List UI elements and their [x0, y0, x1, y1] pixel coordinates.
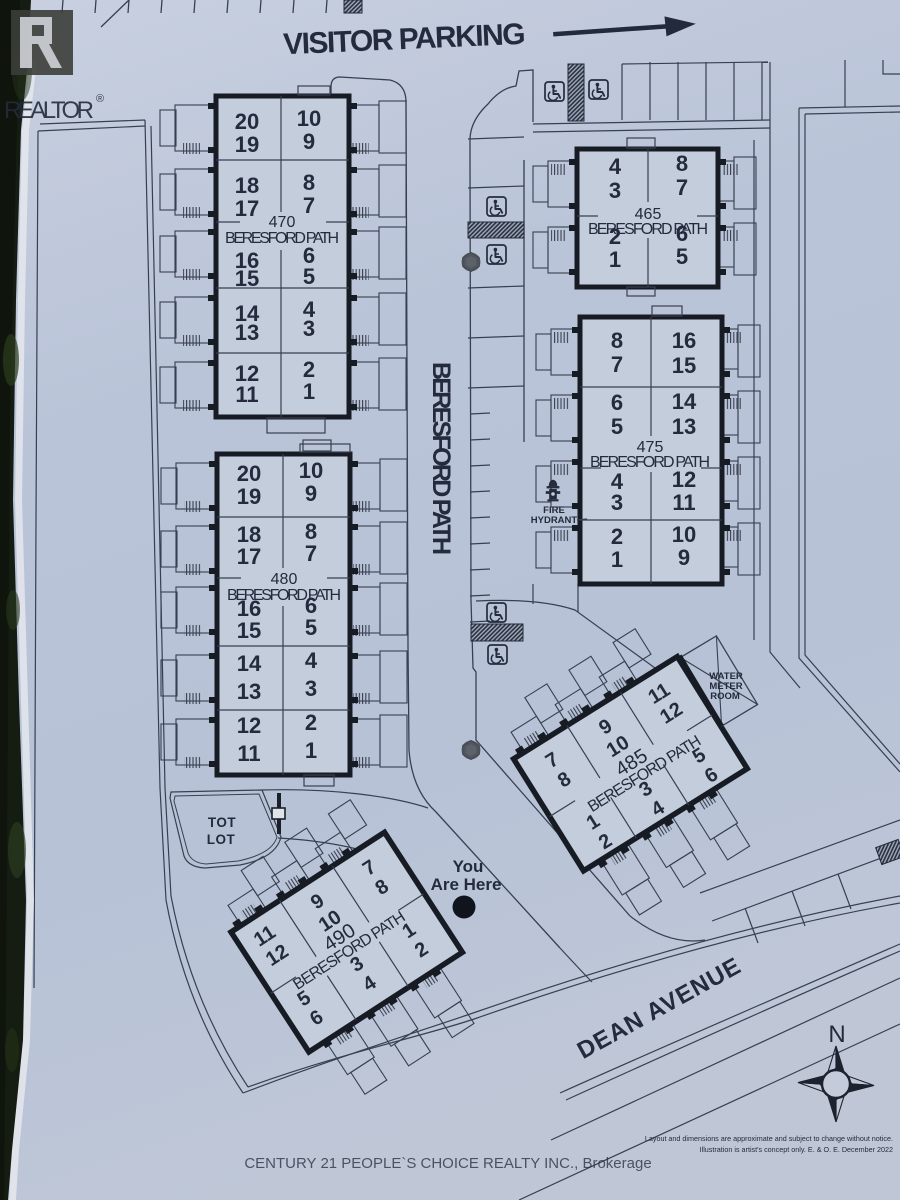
svg-text:2: 2 — [611, 524, 623, 549]
svg-text:BERESFORD PATH: BERESFORD PATH — [590, 454, 710, 471]
svg-text:BERESFORD PATH: BERESFORD PATH — [225, 230, 339, 247]
svg-text:13: 13 — [672, 414, 696, 439]
svg-text:Layout and dimensions are appr: Layout and dimensions are approximate an… — [645, 1134, 893, 1143]
svg-text:8: 8 — [303, 170, 315, 195]
svg-text:19: 19 — [237, 484, 261, 509]
svg-text:13: 13 — [235, 320, 259, 345]
svg-text:BERESFORD PATH: BERESFORD PATH — [227, 587, 341, 604]
svg-text:5: 5 — [611, 414, 623, 439]
svg-text:19: 19 — [235, 132, 259, 157]
svg-text:11: 11 — [672, 490, 695, 515]
svg-text:11: 11 — [235, 382, 258, 407]
svg-text:17: 17 — [235, 196, 259, 221]
svg-text:8: 8 — [676, 151, 688, 176]
svg-text:3: 3 — [305, 676, 317, 701]
svg-text:17: 17 — [237, 544, 261, 569]
svg-text:9: 9 — [305, 481, 317, 506]
svg-text:9: 9 — [678, 545, 690, 570]
svg-text:4: 4 — [609, 154, 622, 179]
svg-text:20: 20 — [237, 461, 261, 486]
svg-text:N: N — [828, 1021, 845, 1048]
svg-text:14: 14 — [672, 389, 697, 414]
svg-text:12: 12 — [237, 713, 261, 738]
svg-text:20: 20 — [235, 109, 259, 134]
svg-text:15: 15 — [235, 266, 259, 291]
svg-text:11: 11 — [237, 741, 260, 766]
svg-text:16: 16 — [672, 328, 696, 353]
svg-text:BERESFORD PATH: BERESFORD PATH — [588, 221, 708, 238]
svg-text:ROOM: ROOM — [710, 691, 740, 702]
svg-text:5: 5 — [676, 244, 688, 269]
svg-text:14: 14 — [237, 651, 262, 676]
svg-text:CENTURY 21 PEOPLE`S CHOICE REA: CENTURY 21 PEOPLE`S CHOICE REALTY INC., … — [244, 1155, 651, 1172]
svg-text:18: 18 — [235, 173, 259, 198]
svg-text:7: 7 — [303, 193, 315, 218]
svg-text:5: 5 — [303, 264, 315, 289]
svg-text:3: 3 — [303, 316, 315, 341]
svg-text:10: 10 — [299, 458, 323, 483]
svg-text:7: 7 — [676, 175, 688, 200]
svg-text:1: 1 — [611, 547, 623, 572]
svg-text:10: 10 — [672, 522, 696, 547]
svg-text:13: 13 — [237, 679, 261, 704]
svg-text:7: 7 — [611, 352, 623, 377]
svg-text:6: 6 — [611, 390, 623, 415]
svg-text:Illustration is artist's conce: Illustration is artist's concept only. E… — [700, 1145, 893, 1154]
svg-text:LOT: LOT — [207, 832, 236, 847]
svg-text:10: 10 — [297, 106, 321, 131]
svg-text:5: 5 — [305, 615, 317, 640]
svg-text:480: 480 — [271, 571, 298, 588]
svg-text:3: 3 — [609, 178, 621, 203]
svg-text:4: 4 — [305, 648, 318, 673]
svg-text:HYDRANT: HYDRANT — [531, 515, 578, 526]
svg-text:®: ® — [96, 93, 104, 105]
svg-text:BERESFORD PATH: BERESFORD PATH — [427, 362, 455, 556]
svg-text:15: 15 — [237, 618, 261, 643]
svg-text:1: 1 — [305, 738, 317, 763]
svg-text:1: 1 — [303, 379, 315, 404]
svg-text:9: 9 — [303, 129, 315, 154]
svg-text:470: 470 — [269, 214, 296, 231]
svg-text:Are Here: Are Here — [431, 875, 502, 894]
svg-text:You: You — [453, 857, 484, 876]
svg-text:3: 3 — [611, 490, 623, 515]
svg-text:TOT: TOT — [208, 815, 237, 830]
svg-text:8: 8 — [611, 328, 623, 353]
svg-text:REALTOR: REALTOR — [4, 97, 94, 124]
svg-text:15: 15 — [672, 353, 696, 378]
svg-text:2: 2 — [305, 710, 317, 735]
svg-text:7: 7 — [305, 541, 317, 566]
svg-text:1: 1 — [609, 247, 621, 272]
